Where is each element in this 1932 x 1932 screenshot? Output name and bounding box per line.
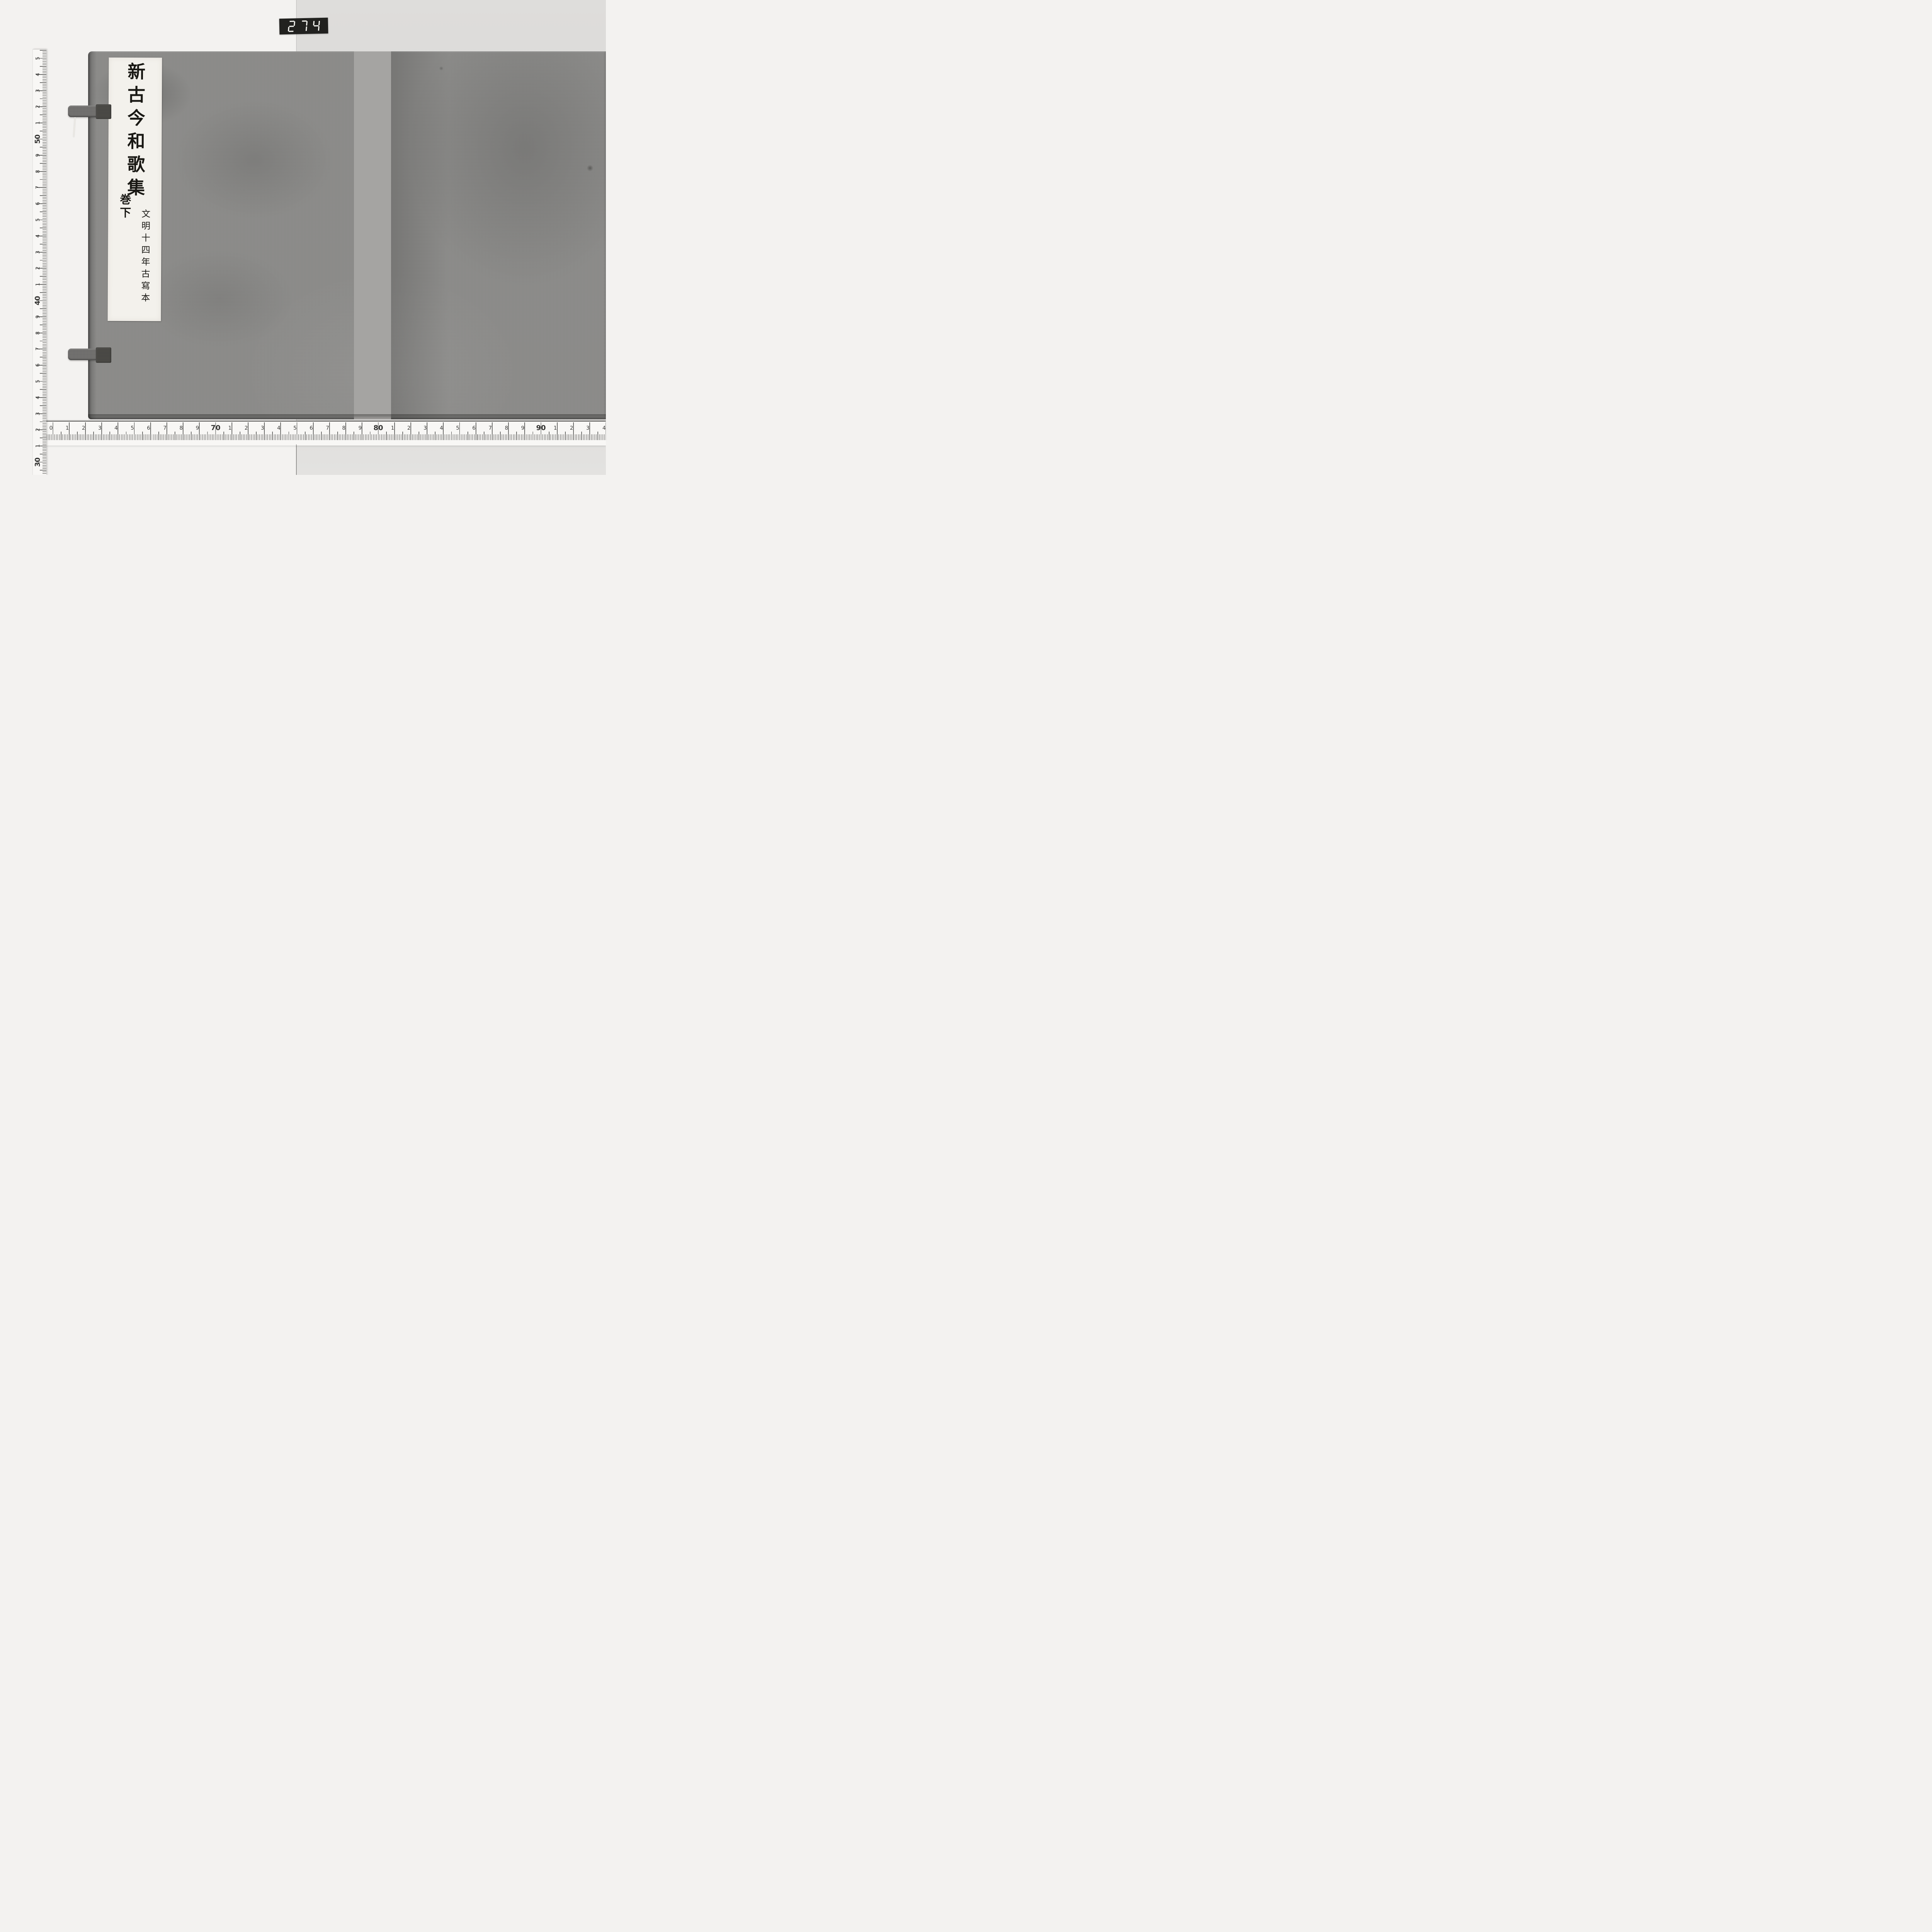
archival-photo: 新古今和歌集 巻下 文明十四年古寫本 012345678970123456789… bbox=[0, 0, 606, 475]
horizontal-ruler-label: 8 bbox=[505, 423, 509, 433]
horizontal-ruler-label: 2 bbox=[407, 423, 411, 433]
title-main-text: 新古今和歌集 bbox=[122, 62, 148, 201]
vertical-ruler-label: 3 bbox=[35, 89, 41, 92]
vertical-ruler-label: 4 bbox=[35, 73, 41, 77]
horizontal-ruler-label: 4 bbox=[114, 423, 118, 433]
vertical-ruler-label: 2 bbox=[35, 267, 41, 270]
horizontal-ruler-label: 3 bbox=[261, 423, 264, 433]
mm-ticks bbox=[45, 434, 606, 440]
clasp-bottom bbox=[68, 347, 111, 363]
horizontal-ruler-label: 90 bbox=[536, 423, 546, 433]
horizontal-ruler-label: 2 bbox=[82, 423, 85, 433]
vertical-ruler-label: 1 bbox=[35, 121, 41, 125]
vertical-ruler-label: 4 bbox=[35, 396, 41, 400]
seven-seg-digit bbox=[287, 20, 295, 32]
horizontal-ruler-label: 5 bbox=[456, 423, 459, 433]
title-note-text: 文明十四年古寫本 bbox=[138, 209, 151, 305]
title-label: 新古今和歌集 巻下 文明十四年古寫本 bbox=[108, 58, 162, 321]
vertical-ruler-label: 30 bbox=[34, 457, 42, 467]
horizontal-ruler-label: 6 bbox=[310, 423, 313, 433]
clasp-strap bbox=[68, 349, 99, 360]
horizontal-ruler-label: 9 bbox=[521, 423, 525, 433]
horizontal-ruler-label: 1 bbox=[66, 423, 69, 433]
clasp-strap bbox=[68, 105, 99, 117]
horizontal-ruler-label: 6 bbox=[147, 423, 150, 433]
film-seam-line-lower bbox=[296, 444, 297, 475]
cover-shading bbox=[391, 51, 449, 419]
number-plate bbox=[279, 18, 328, 35]
vertical-ruler-label: 1 bbox=[35, 444, 41, 448]
vertical-ruler-label: 9 bbox=[35, 315, 41, 319]
vertical-ruler-label: 6 bbox=[35, 202, 41, 206]
vertical-ruler-label: 8 bbox=[35, 170, 41, 173]
seven-seg-digit bbox=[312, 20, 320, 31]
horizontal-ruler: 01234567897012345678980123456789901234 bbox=[45, 421, 606, 446]
vertical-ruler-label: 2 bbox=[35, 105, 41, 109]
horizontal-ruler-label: 4 bbox=[277, 423, 281, 433]
horizontal-ruler-label: 1 bbox=[554, 423, 557, 433]
horizontal-ruler-label: 70 bbox=[211, 423, 220, 433]
vertical-ruler-label: 6 bbox=[35, 364, 41, 367]
horizontal-ruler-label: 2 bbox=[570, 423, 573, 433]
tie-cord bbox=[73, 117, 76, 137]
vertical-ruler-label: 50 bbox=[34, 134, 42, 144]
horizontal-ruler-label: 9 bbox=[196, 423, 199, 433]
horizontal-ruler-label: 7 bbox=[488, 423, 492, 433]
cm-ticks bbox=[36, 49, 46, 475]
book-cover: 新古今和歌集 巻下 文明十四年古寫本 bbox=[88, 51, 606, 419]
horizontal-ruler-label: 8 bbox=[180, 423, 183, 433]
vertical-ruler-label: 9 bbox=[35, 154, 41, 157]
clasp-patch bbox=[96, 347, 111, 363]
horizontal-ruler-label: 2 bbox=[245, 423, 248, 433]
title-volume-text: 巻下 bbox=[117, 194, 133, 220]
vertical-ruler-label: 7 bbox=[35, 347, 41, 351]
horizontal-ruler-label: 5 bbox=[293, 423, 297, 433]
vertical-ruler-label: 1 bbox=[35, 283, 41, 286]
vertical-ruler-label: 3 bbox=[35, 412, 41, 415]
vertical-ruler-label: 7 bbox=[35, 186, 41, 189]
horizontal-ruler-label: 4 bbox=[440, 423, 443, 433]
horizontal-ruler-label: 3 bbox=[586, 423, 590, 433]
vertical-ruler-label: 2 bbox=[35, 428, 41, 432]
horizontal-ruler-label: 80 bbox=[373, 423, 383, 433]
vertical-ruler-label: 5 bbox=[35, 218, 41, 222]
vertical-ruler-label: 40 bbox=[34, 296, 42, 305]
book-spine-band bbox=[354, 51, 391, 419]
horizontal-ruler-label: 7 bbox=[163, 423, 167, 433]
vertical-ruler-label: 3 bbox=[35, 250, 41, 254]
horizontal-ruler-label: 4 bbox=[602, 423, 606, 433]
seven-seg-digit bbox=[299, 20, 308, 32]
vertical-ruler-label: 4 bbox=[35, 235, 41, 238]
horizontal-ruler-label: 1 bbox=[228, 423, 232, 433]
horizontal-ruler-label: 1 bbox=[391, 423, 395, 433]
horizontal-ruler-label: 6 bbox=[472, 423, 476, 433]
vertical-ruler-label: 8 bbox=[35, 331, 41, 335]
horizontal-ruler-label: 0 bbox=[49, 423, 53, 433]
clasp-patch bbox=[96, 104, 111, 119]
horizontal-ruler-label: 7 bbox=[326, 423, 329, 433]
horizontal-ruler-label: 8 bbox=[342, 423, 346, 433]
vertical-ruler-label: 5 bbox=[35, 380, 41, 383]
horizontal-ruler-label: 3 bbox=[423, 423, 427, 433]
vertical-ruler: 543215098765432140987654321309 bbox=[33, 49, 46, 475]
horizontal-ruler-label: 5 bbox=[131, 423, 134, 433]
book-bottom-shadow bbox=[88, 414, 606, 421]
horizontal-ruler-label: 3 bbox=[98, 423, 102, 433]
vertical-ruler-label: 5 bbox=[35, 57, 41, 60]
horizontal-ruler-label: 9 bbox=[359, 423, 362, 433]
